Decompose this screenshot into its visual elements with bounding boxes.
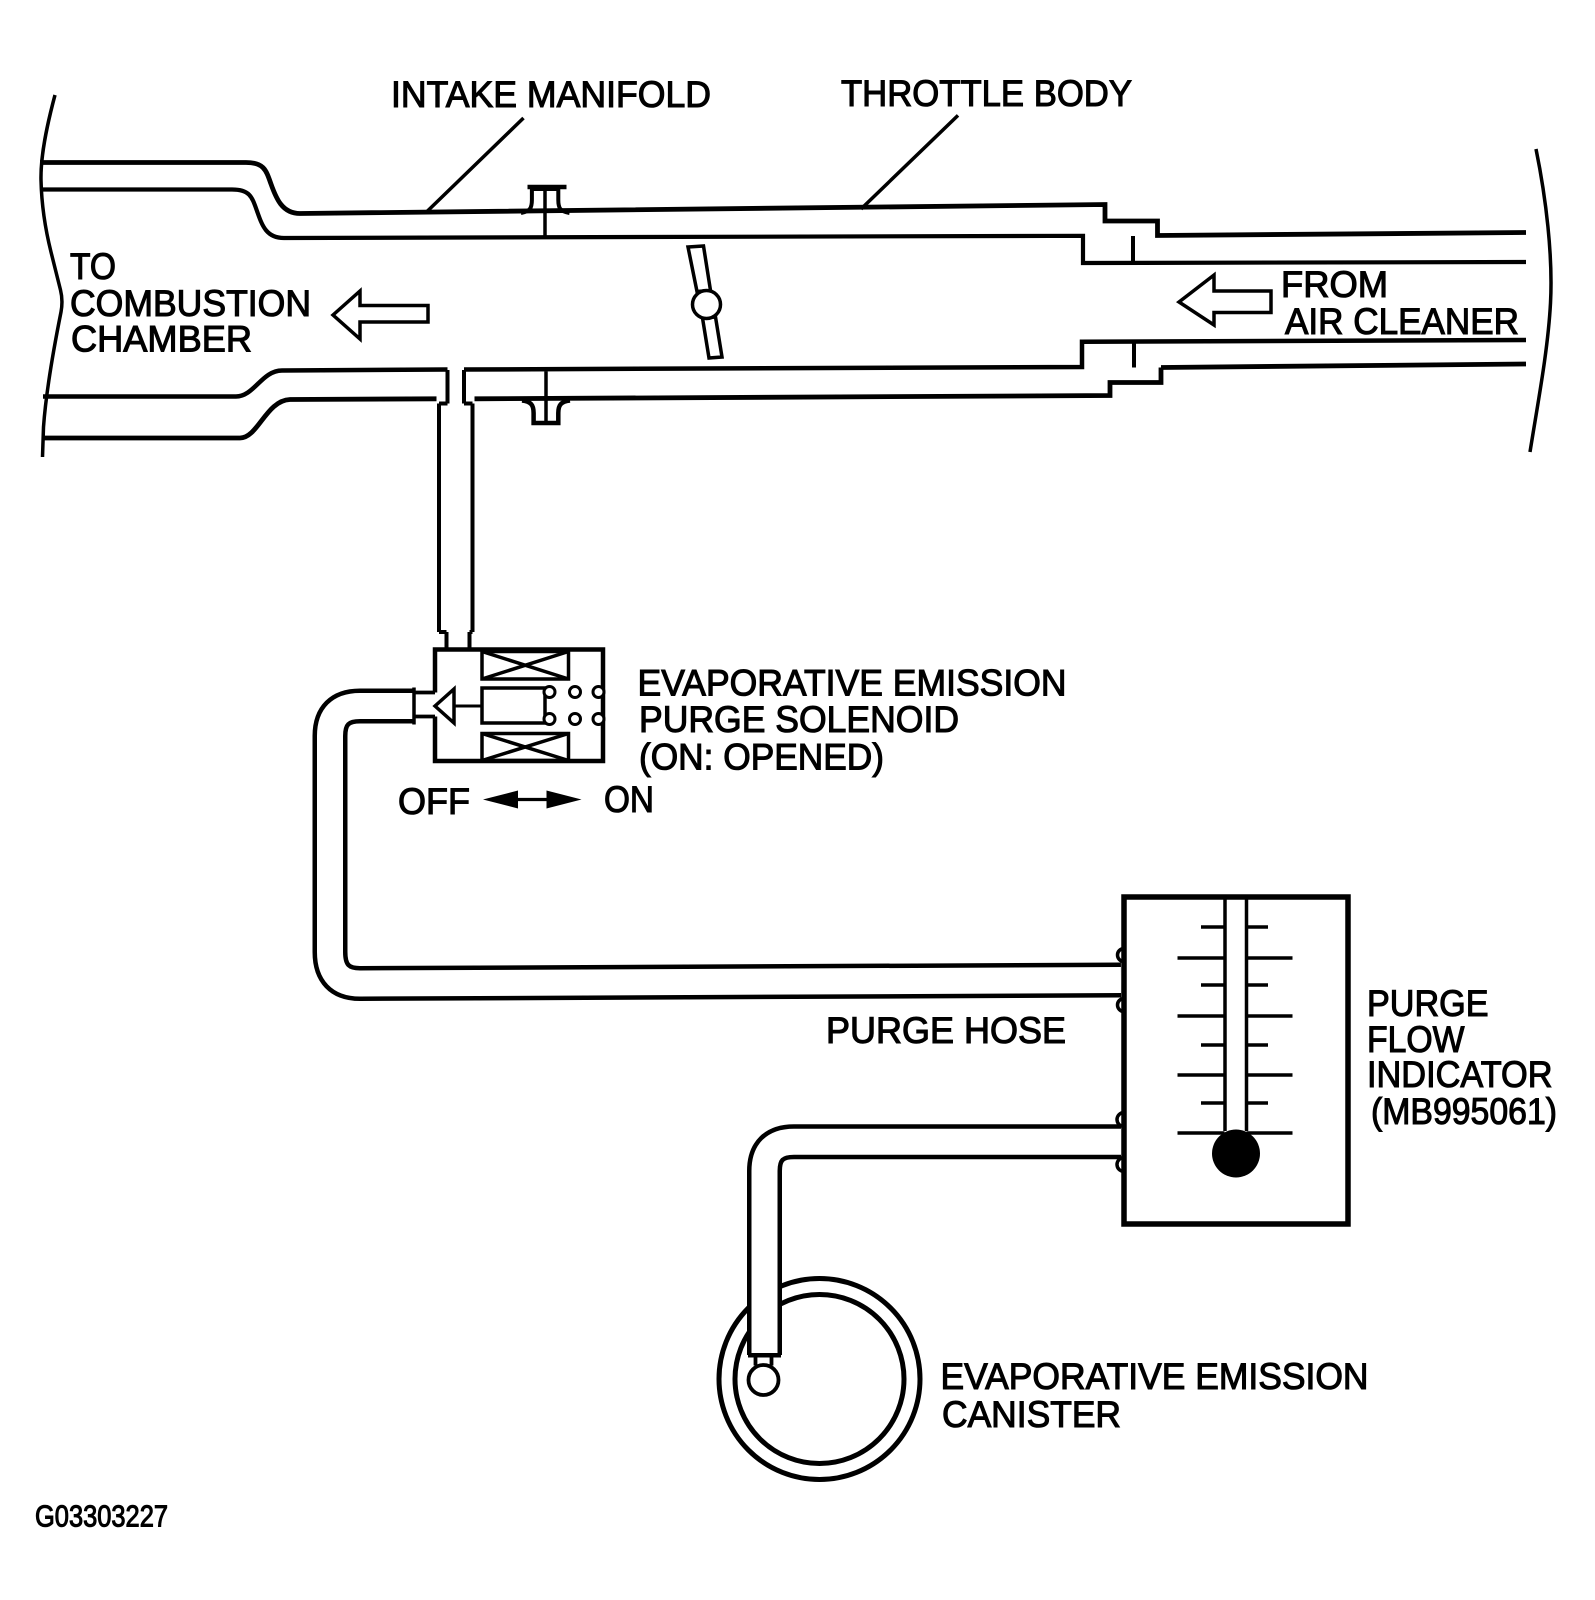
svg-text:INDICATOR: INDICATOR: [1367, 1054, 1553, 1095]
svg-text:CANISTER: CANISTER: [942, 1394, 1121, 1435]
svg-text:CHAMBER: CHAMBER: [71, 319, 252, 360]
svg-text:FROM: FROM: [1281, 264, 1388, 305]
svg-text:G03303227: G03303227: [35, 1499, 168, 1534]
svg-text:EVAPORATIVE EMISSION: EVAPORATIVE EMISSION: [941, 1356, 1369, 1397]
svg-text:PURGE SOLENOID: PURGE SOLENOID: [639, 699, 959, 740]
svg-text:PURGE: PURGE: [1367, 983, 1489, 1024]
svg-text:ON: ON: [604, 779, 654, 820]
svg-text:OFF: OFF: [398, 781, 470, 822]
svg-text:(ON: OPENED): (ON: OPENED): [639, 737, 884, 778]
svg-text:PURGE HOSE: PURGE HOSE: [826, 1010, 1066, 1051]
svg-text:AIR CLEANER: AIR CLEANER: [1285, 301, 1519, 342]
svg-text:EVAPORATIVE EMISSION: EVAPORATIVE EMISSION: [638, 663, 1067, 704]
svg-text:(MB995061): (MB995061): [1371, 1091, 1557, 1132]
svg-text:THROTTLE BODY: THROTTLE BODY: [841, 73, 1132, 114]
svg-text:INTAKE MANIFOLD: INTAKE MANIFOLD: [391, 74, 711, 115]
svg-text:TO: TO: [70, 246, 116, 287]
